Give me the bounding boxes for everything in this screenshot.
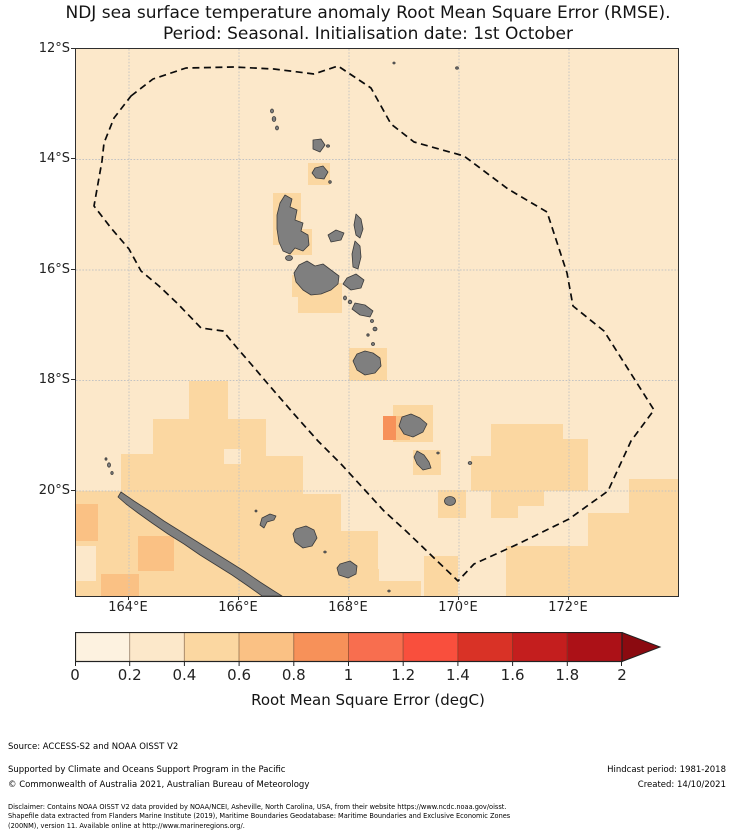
colorbar-segment [294,633,349,662]
figure-title-line1: NDJ sea surface temperature anomaly Root… [0,3,736,23]
island-shepherd [372,343,375,346]
colorbar-tick-label: 0.4 [172,666,196,684]
rmse-cell [379,556,424,581]
figure: NDJ sea surface temperature anomaly Root… [0,0,736,839]
lon-tick-label: 164°E [108,600,148,615]
lat-tick-label: 18°S [0,372,70,387]
island-paama [344,296,347,300]
island-torres [271,109,274,113]
lon-tick-label: 170°E [438,600,478,615]
island-malo [286,256,293,261]
footer-hindcast: Hindcast period: 1981-2018 [607,765,726,775]
colorbar-segment [130,633,185,662]
lat-tick-label: 14°S [0,151,70,166]
island-shepherd [371,320,374,323]
colorbar-tick-label: 1 [344,666,354,684]
island-tiga [324,551,326,553]
footer-created: Created: 14/10/2021 [638,780,726,790]
colorbar-segment [75,633,130,662]
island-shepherd [373,327,377,331]
footer-copyright: © Commonwealth of Australia 2021, Austra… [8,780,309,790]
footer-source: Source: ACCESS-S2 and NOAA OISST V2 [8,742,178,752]
disclaimer-line: (200NM), version 11. Available online at… [8,822,510,831]
colorbar-extend-arrow [622,633,660,662]
islet [456,67,459,69]
map-canvas [76,49,678,596]
island-mota [327,145,330,147]
colorbar-segment [567,633,622,662]
lat-tick-label: 20°S [0,483,70,498]
colorbar-segment [349,633,404,662]
colorbar-segment [184,633,239,662]
lon-tick-label: 172°E [548,600,588,615]
colorbar-tick-label: 0.2 [118,666,142,684]
footer-supported: Supported by Climate and Oceans Support … [8,765,285,775]
colorbar [75,632,665,666]
island-futuna [468,462,472,465]
islet [255,510,257,512]
island-aniwa [437,452,439,454]
colorbar-segment [403,633,458,662]
island-aneityum [445,497,456,506]
island-torres [272,117,276,122]
footer-disclaimer: Disclaimer: Contains NOAA OISST V2 data … [8,803,510,831]
rmse-cell [138,536,174,571]
island-belep [105,458,107,460]
rmse-cell [101,574,139,596]
rmse-cell [76,546,96,581]
colorbar-segment [513,633,568,662]
colorbar-tick-label: 1.6 [501,666,525,684]
island-torres [276,126,279,130]
disclaimer-line: Disclaimer: Contains NOAA OISST V2 data … [8,803,510,812]
island-shepherd [367,334,369,336]
colorbar-tick-label: 1.4 [446,666,470,684]
figure-title-line2: Period: Seasonal. Initialisation date: 1… [0,24,736,44]
island-belep [108,463,111,467]
rmse-cell [76,504,98,541]
island-lopevi [348,300,352,304]
rmse-cell [224,449,241,464]
islet [393,62,395,64]
colorbar-tick-label: 2 [617,666,627,684]
colorbar-tick-label: 1.2 [391,666,415,684]
rmse-cell [424,556,458,596]
map-panel [75,48,679,597]
colorbar-tick-label: 0 [70,666,80,684]
colorbar-tick-label: 0.6 [227,666,251,684]
colorbar-title: Root Mean Square Error (degC) [251,691,485,709]
lat-tick-label: 16°S [0,262,70,277]
islet [388,590,390,592]
lon-tick-label: 166°E [218,600,258,615]
disclaimer-line: Shapefile data extracted from Flanders M… [8,812,510,821]
colorbar-segment [239,633,294,662]
island-belep [111,472,113,475]
colorbar-tick-label: 1.8 [555,666,579,684]
colorbar-segment [458,633,513,662]
colorbar-tick-label: 0.8 [282,666,306,684]
colorbar-canvas [75,632,665,666]
lat-tick-label: 12°S [0,41,70,56]
rmse-cell [383,416,396,440]
lon-tick-label: 168°E [328,600,368,615]
rmse-patches-0.8-1.0 [383,416,396,440]
rmse-cell [371,581,421,596]
colorbar-segments [75,633,622,662]
island-mere-lava [329,181,332,184]
